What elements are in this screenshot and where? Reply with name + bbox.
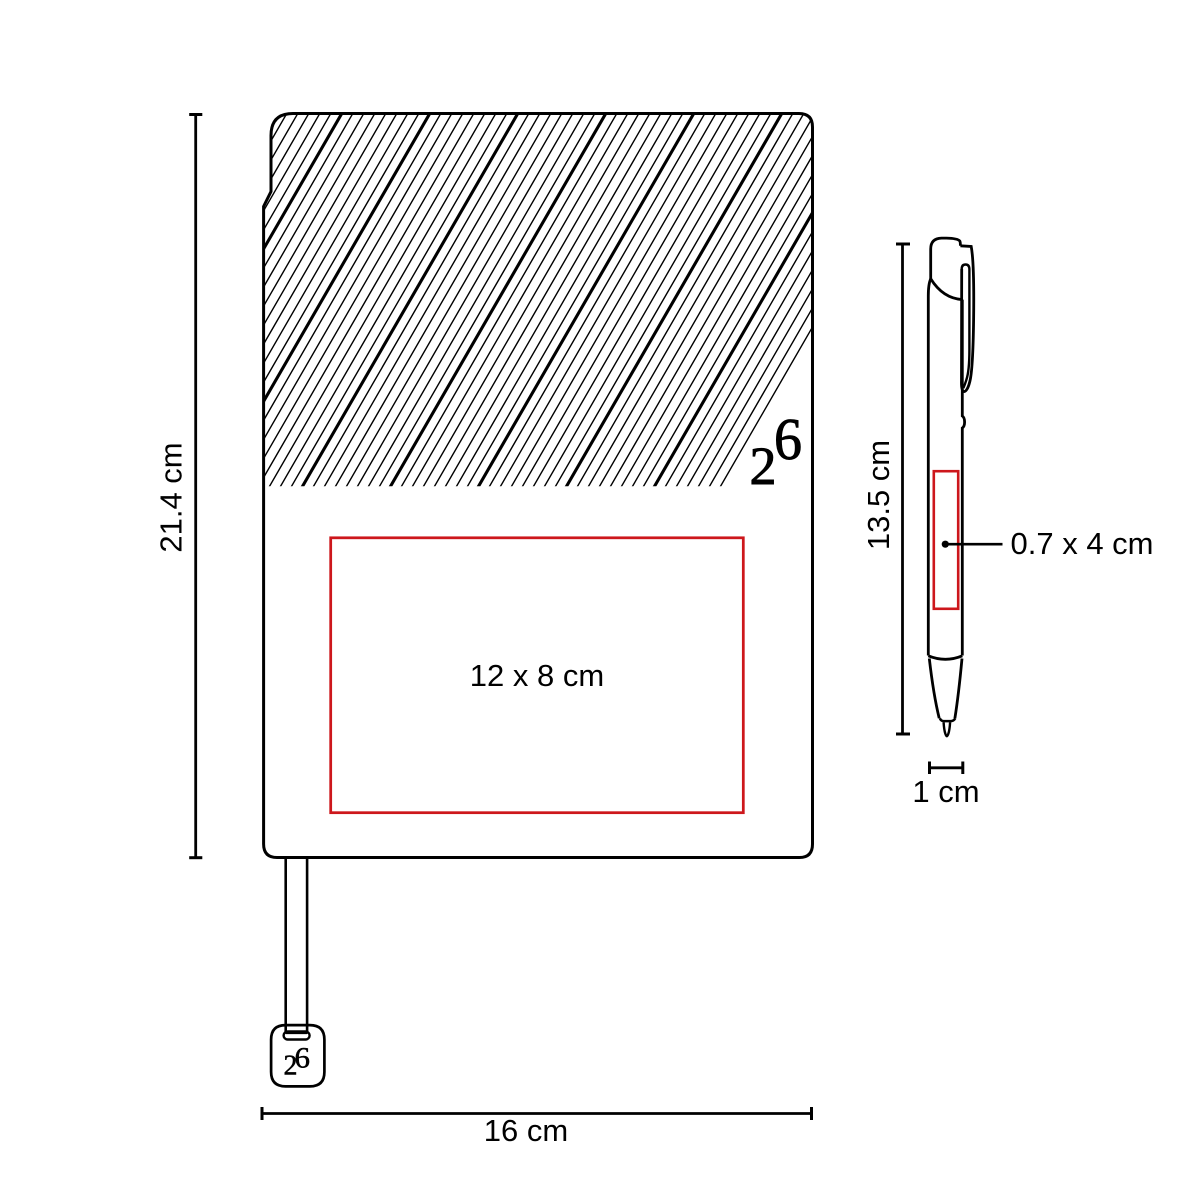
svg-text:0.7 x 4 cm: 0.7 x 4 cm — [1011, 526, 1154, 561]
svg-text:16 cm: 16 cm — [484, 1113, 568, 1148]
svg-text:12 x 8 cm: 12 x 8 cm — [470, 658, 604, 693]
svg-text:21.4 cm: 21.4 cm — [154, 442, 189, 552]
svg-text:2: 2 — [750, 436, 777, 496]
svg-text:6: 6 — [774, 406, 802, 472]
svg-text:1 cm: 1 cm — [912, 774, 979, 809]
svg-text:6: 6 — [295, 1042, 311, 1075]
svg-text:13.5 cm: 13.5 cm — [861, 440, 896, 550]
